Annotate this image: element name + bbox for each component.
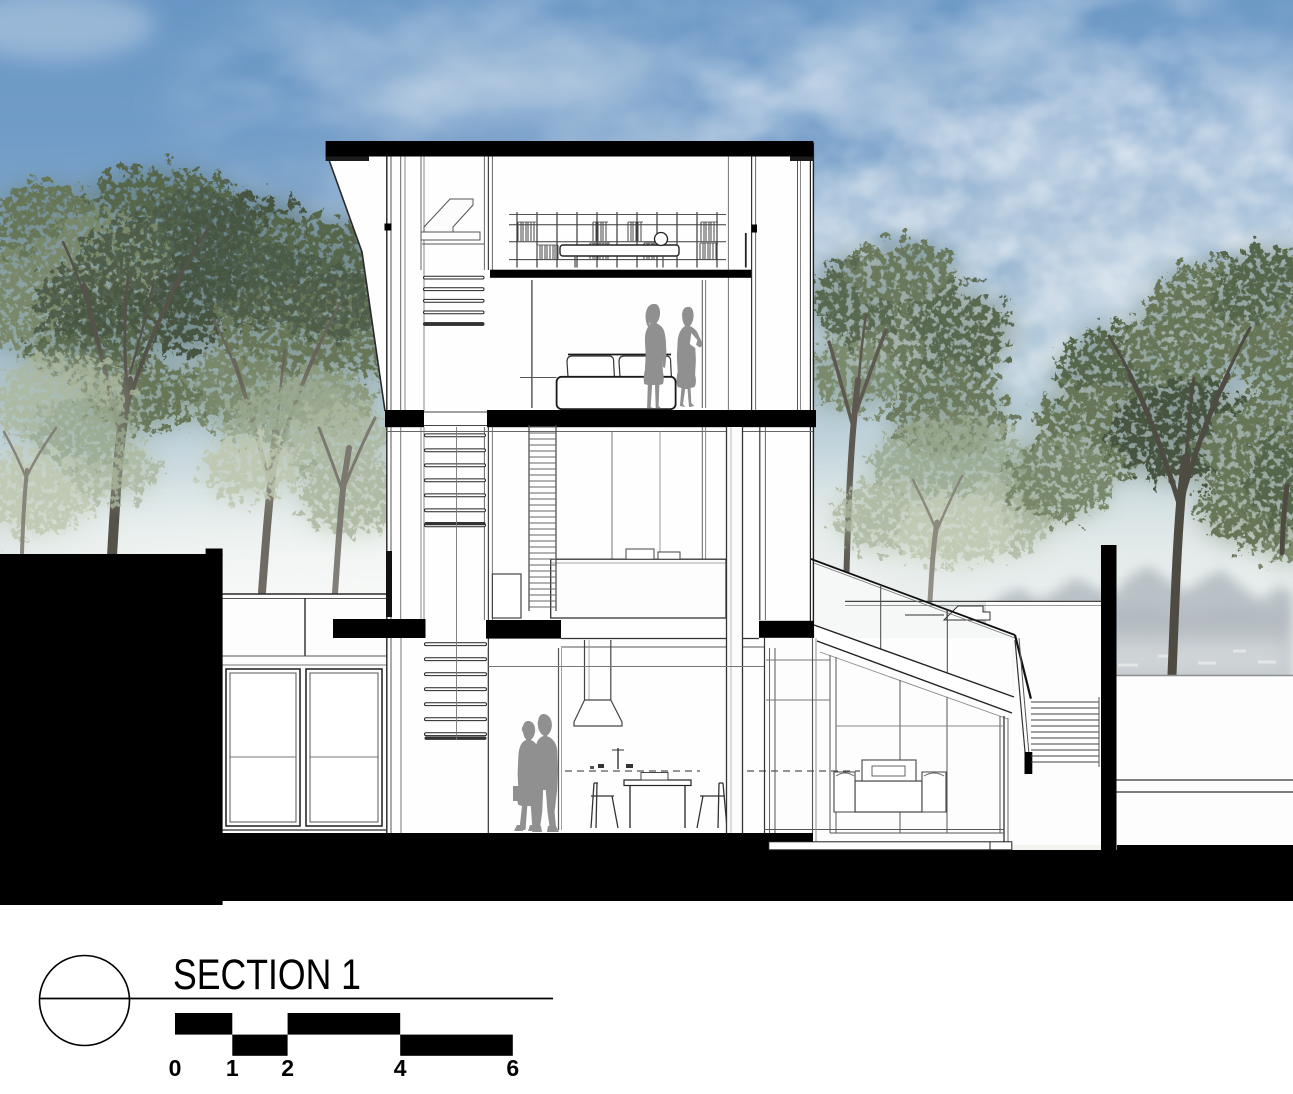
svg-text:6: 6 bbox=[506, 1055, 519, 1081]
svg-text:1: 1 bbox=[226, 1055, 239, 1081]
svg-text:4: 4 bbox=[394, 1055, 407, 1081]
svg-text:SECTION 1: SECTION 1 bbox=[173, 951, 361, 999]
svg-text:0: 0 bbox=[169, 1055, 182, 1081]
svg-text:2: 2 bbox=[281, 1055, 294, 1081]
